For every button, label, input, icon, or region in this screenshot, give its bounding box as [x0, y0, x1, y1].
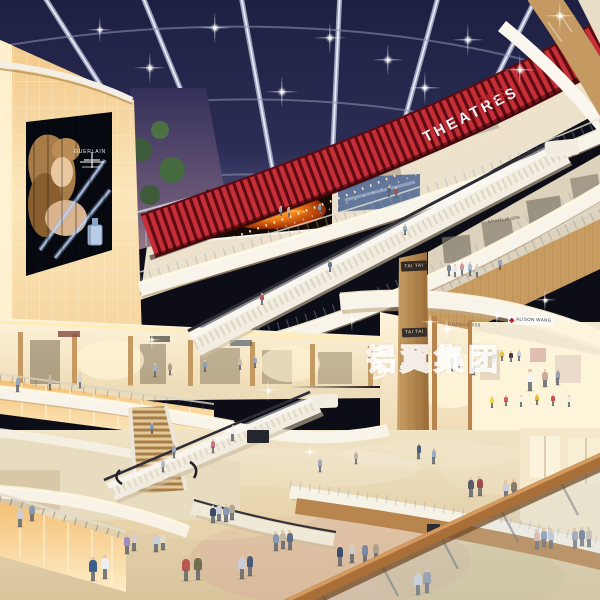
mall-atrium-rendering: THEATRES RES TAI TAI TAI TAI CHARLIE 888…: [0, 0, 600, 600]
foreground-railing: [0, 0, 600, 600]
